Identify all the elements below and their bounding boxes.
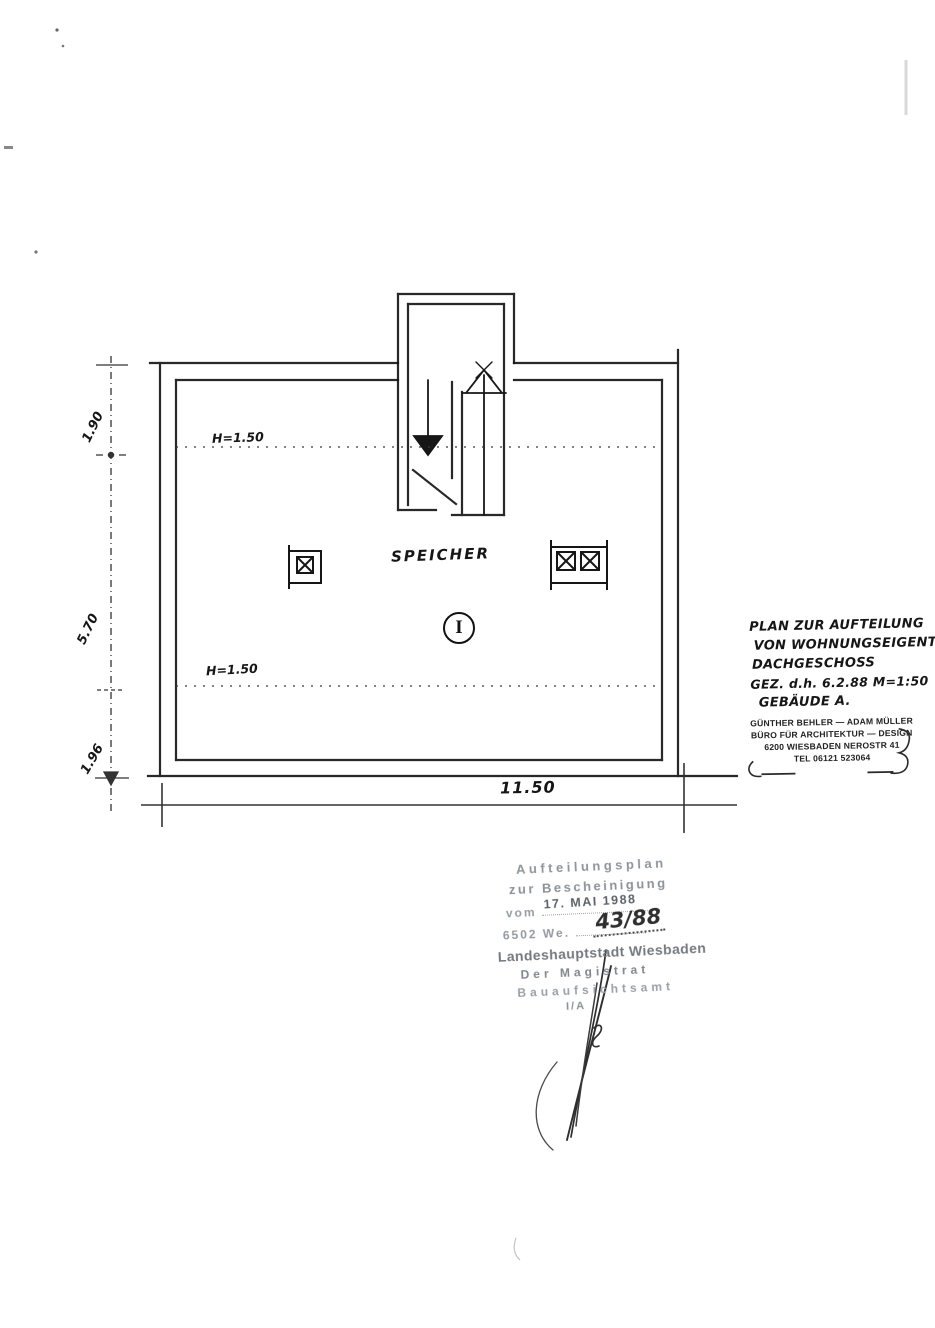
height-dashed-lines (176, 447, 662, 686)
stairwell-enclosure (398, 294, 514, 515)
handwritten-annotation: PLAN ZUR AUFTEILUNG VON WOHNUNGSEIGENTUM… (749, 614, 926, 713)
stamp-file-prefix: 6502 We. (503, 926, 571, 943)
stamp-title: Aufteilungsplan (516, 855, 667, 877)
dim-label-bottom: 11.50 (500, 778, 556, 798)
height-label-top: H=1.50 (212, 429, 264, 446)
stamp-bauaufsichtsamt: Bauaufsichtsamt (517, 979, 674, 1000)
architect-stamp-border (746, 715, 917, 782)
stamp-department-code: I/A (566, 1000, 587, 1013)
unit-number-marker: I (443, 612, 475, 644)
annotation-line: VON WOHNUNGSEIGENTUM (753, 633, 924, 656)
room-label: SPEICHER (391, 544, 491, 565)
stamp-authority: Landeshauptstadt Wiesbaden (497, 940, 706, 965)
height-label-bottom: H=1.50 (206, 661, 258, 679)
chimney-right (551, 540, 607, 590)
chimney-left (289, 545, 321, 589)
file-number-handwritten: 43/88 (591, 904, 665, 938)
architect-stamp: GÜNTHER BEHLER — ADAM MÜLLER BÜRO FÜR AR… (746, 715, 917, 782)
official-approval-stamp: Aufteilungsplan zur Bescheinigung vom 17… (494, 851, 721, 1020)
annotation-line: GEZ. d.h. 6.2.88 M=1:50 (750, 671, 925, 694)
stamp-magistrat: Der Magistrat (520, 962, 649, 982)
dimension-lines (95, 356, 737, 833)
stair-arrows (414, 362, 506, 515)
annotation-line: GEBÄUDE A. (759, 690, 926, 712)
unit-number-text: I (455, 617, 462, 639)
scanned-plan-page: SPEICHER I H=1.50 H=1.50 1.90 5.70 1.96 … (0, 0, 935, 1328)
stamp-date-prefix: vom (506, 905, 537, 920)
